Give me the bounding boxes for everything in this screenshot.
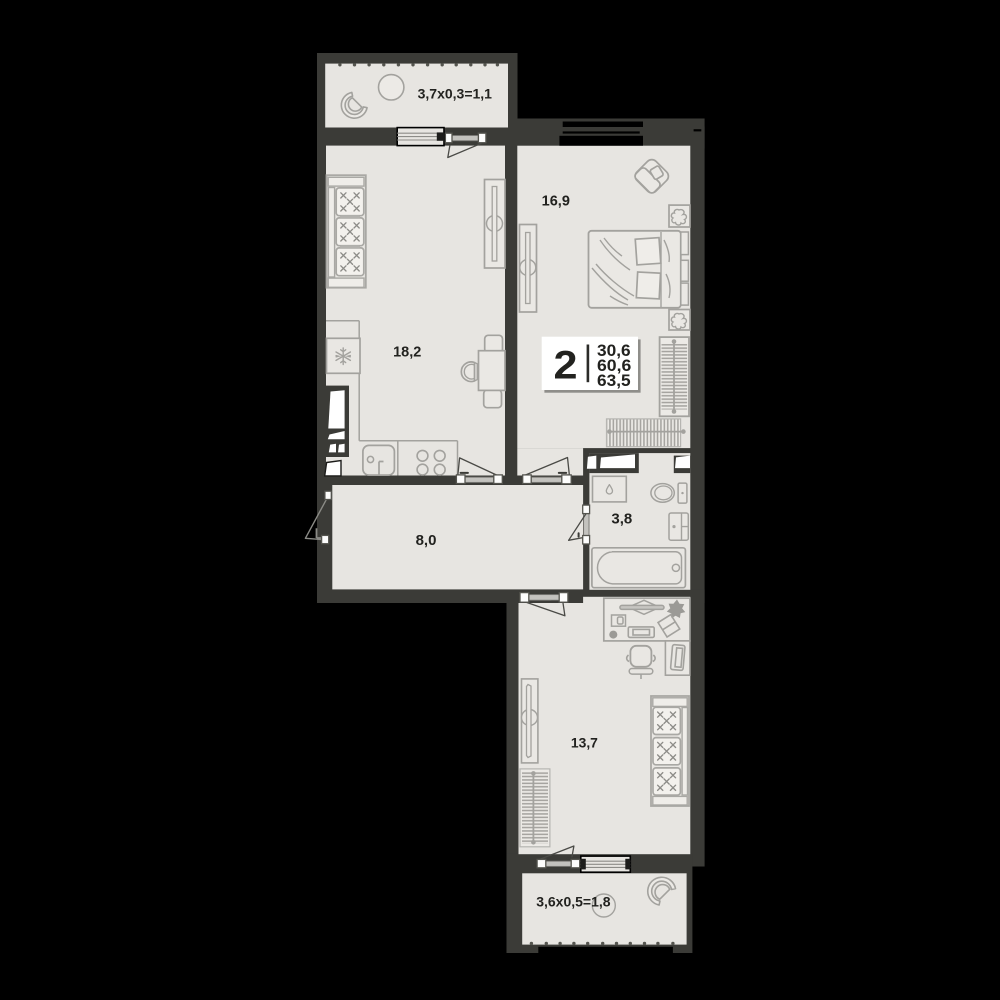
svg-text:3,6x0,5=1,8: 3,6x0,5=1,8 bbox=[536, 893, 611, 909]
svg-text:2: 2 bbox=[554, 343, 578, 387]
svg-text:16,9: 16,9 bbox=[542, 193, 570, 209]
svg-text:3,8: 3,8 bbox=[611, 510, 632, 527]
svg-text:18,2: 18,2 bbox=[393, 345, 421, 361]
svg-text:13,7: 13,7 bbox=[571, 735, 598, 751]
svg-text:8,0: 8,0 bbox=[416, 532, 437, 549]
svg-text:63,5: 63,5 bbox=[597, 371, 631, 390]
svg-text:3,7x0,3=1,1: 3,7x0,3=1,1 bbox=[418, 85, 493, 101]
